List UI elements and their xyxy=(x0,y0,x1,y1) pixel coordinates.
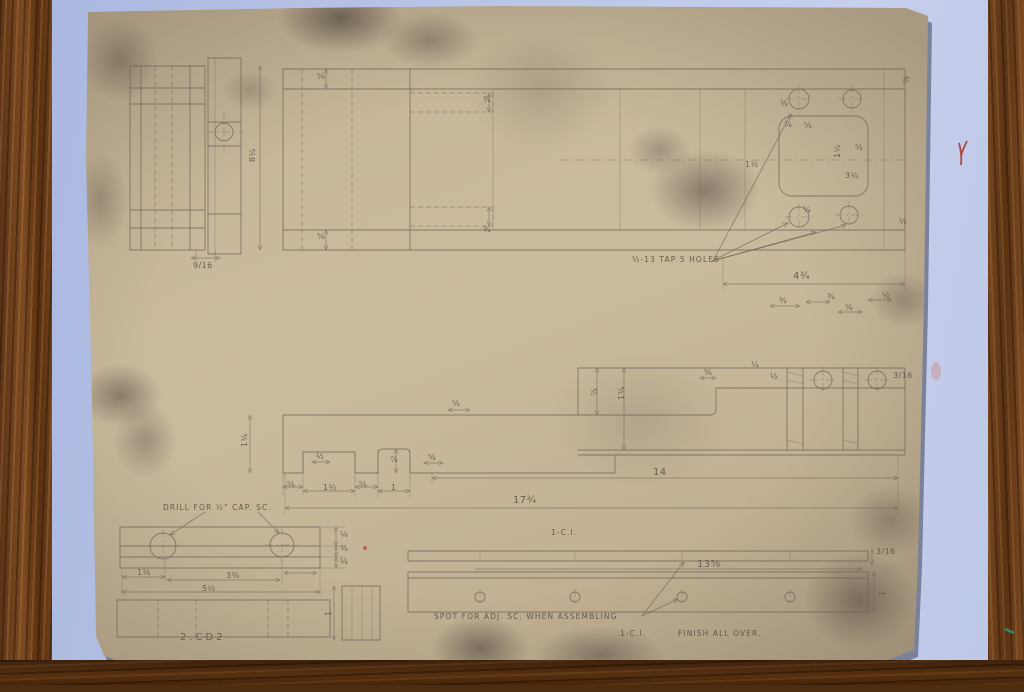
middle-side-view xyxy=(250,367,905,515)
tap-note-leaders xyxy=(712,114,846,261)
bottom-left-part xyxy=(117,512,380,640)
mat-and-stray-marks xyxy=(363,141,1014,633)
red-smudge xyxy=(931,362,941,380)
photo-of-engineering-drawing: ⅝ ¾ ⅜ ⅞ ⅝ 1½ 1¼ ⅝ 3¼ ¼ ⅞ ½ 8¼ ⅝ ¾ 9/16 4… xyxy=(0,0,1024,685)
red-y-mark xyxy=(959,141,967,165)
red-speck xyxy=(363,546,367,550)
end-view-left xyxy=(130,58,260,262)
top-plan-view xyxy=(283,69,905,250)
bottom-right-bar xyxy=(408,549,882,616)
teal-mark xyxy=(1005,629,1014,633)
pencil-linework xyxy=(0,0,1024,685)
